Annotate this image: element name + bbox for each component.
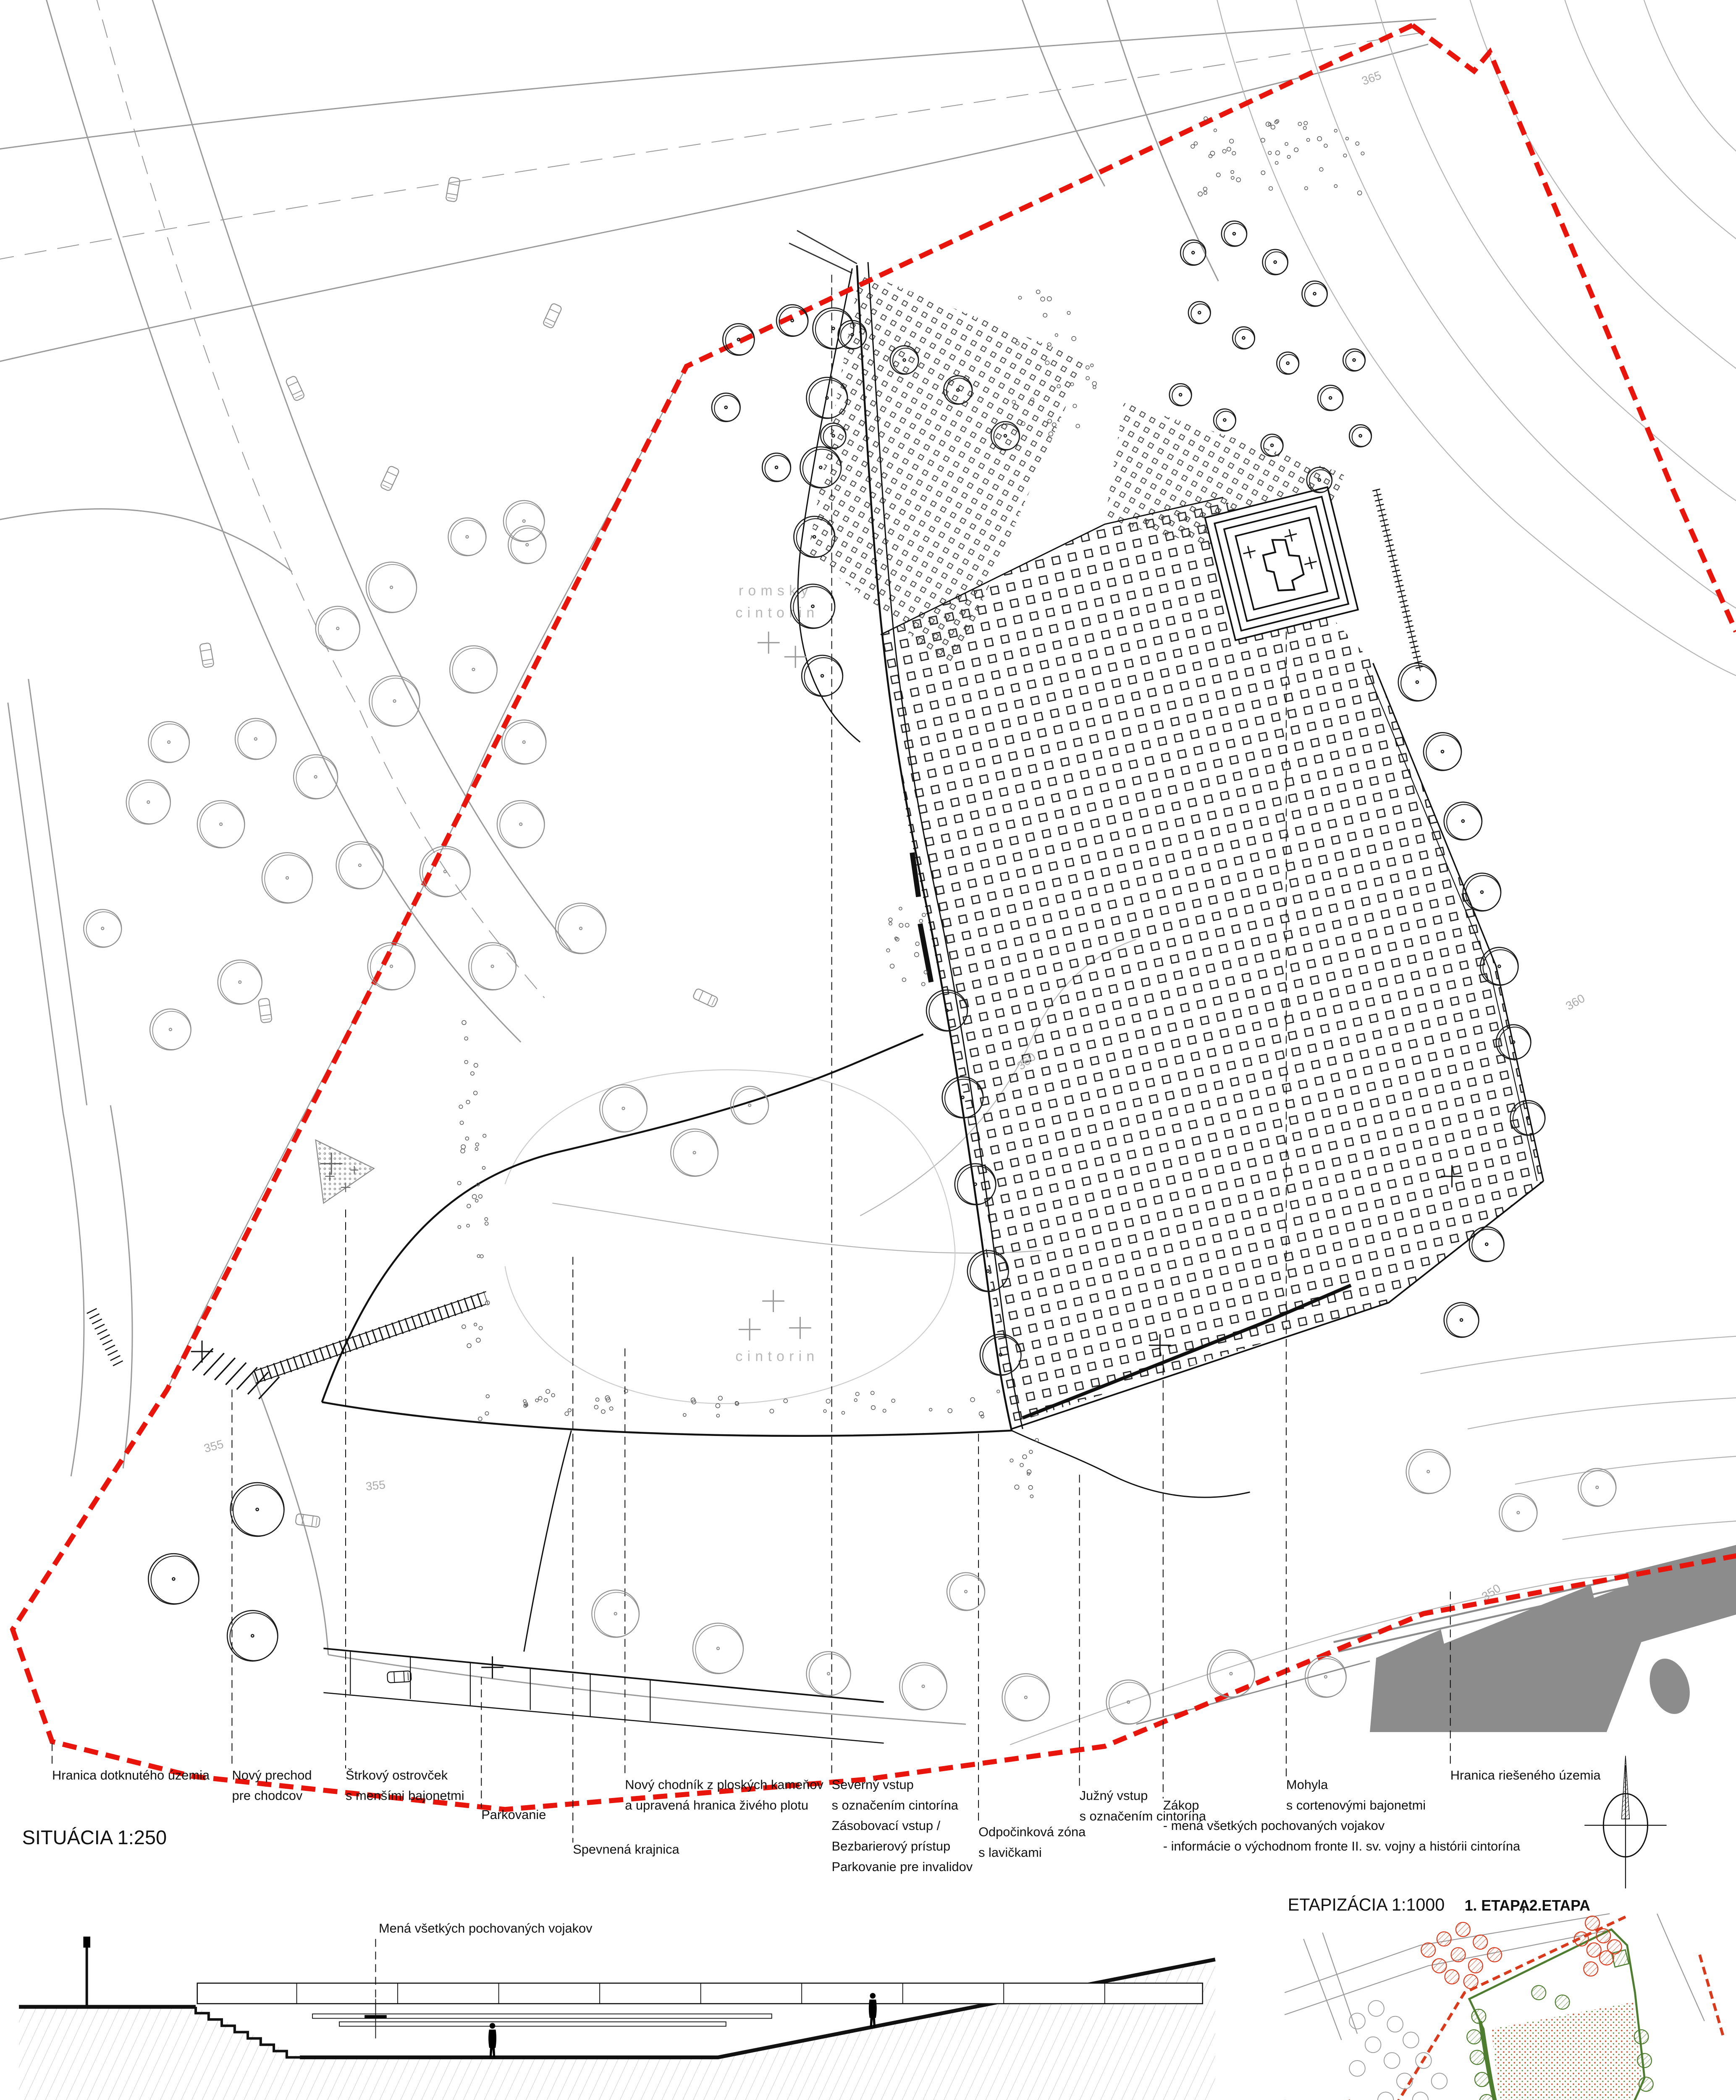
tree-icon: [336, 842, 383, 889]
tree-icon: [1214, 409, 1236, 431]
mini-tree-green: [1634, 2030, 1649, 2044]
stone-dot: [1346, 137, 1349, 140]
stone-dot: [1356, 142, 1359, 145]
stone-dot: [594, 1405, 598, 1409]
tree-icon: [508, 526, 546, 564]
stone-dot: [683, 1413, 686, 1416]
stone-dot: [1194, 142, 1197, 145]
stone-dot: [1203, 187, 1207, 191]
stone-dot: [1303, 126, 1307, 130]
stone-dot: [1023, 1455, 1027, 1459]
mini-tree-green: [1467, 2030, 1481, 2044]
tree-icon: [1444, 802, 1482, 840]
stone-dot: [467, 1224, 469, 1227]
stone-dot: [1287, 155, 1290, 158]
tree-icon: [503, 501, 545, 542]
car-icon: [692, 988, 719, 1008]
gravel-island: [316, 1140, 374, 1203]
stone-dot: [770, 1409, 774, 1413]
stone-dot: [485, 1222, 488, 1225]
stairs-comb: [92, 1310, 120, 1367]
stone-dot: [477, 1255, 480, 1257]
stone-dot: [462, 1021, 466, 1025]
stone-dot: [1334, 129, 1337, 132]
stone-dot: [544, 1399, 548, 1402]
callout-odpocinkova-zona: Odpočinková zóna: [978, 1824, 1086, 1839]
mini-tree-gray: [1413, 2092, 1429, 2100]
stone-dot: [997, 1390, 1000, 1393]
stone-dot: [1261, 171, 1265, 175]
stone-dot: [889, 922, 892, 925]
tree-icon: [899, 1663, 947, 1710]
stone-dot: [1198, 192, 1202, 196]
tree-icon: [693, 1623, 743, 1674]
mini-tree-red: [1445, 1970, 1459, 1984]
mini-tree-red: [1437, 1932, 1451, 1946]
stone-dot: [462, 1325, 466, 1328]
stone-dot: [535, 1399, 538, 1402]
stone-dot: [1055, 333, 1058, 336]
tree-icon: [1499, 1494, 1537, 1531]
mini-tree-green: [1470, 2050, 1484, 2065]
stone-dot: [472, 1194, 477, 1199]
callout-hranica-rieseneho: Hranica riešeného územia: [1450, 1768, 1601, 1782]
stone-dot: [457, 1181, 461, 1185]
stone-dot: [1028, 1486, 1033, 1490]
tree-icon: [1263, 249, 1288, 275]
stone-dot: [1018, 296, 1021, 299]
tree-icon: [450, 646, 497, 693]
stone-dot: [905, 923, 909, 927]
cars-layer: [199, 177, 719, 1683]
mini-tree-red: [1574, 1932, 1589, 1946]
tree-icon: [126, 780, 170, 824]
stone-dot: [1076, 424, 1080, 428]
callout-novy-chodnik: Nový chodník z ploských kameňov: [625, 1777, 823, 1792]
stone-dot: [716, 1404, 720, 1408]
stone-dot: [464, 1060, 468, 1064]
contour-label: 365: [1360, 68, 1383, 87]
stone-dot: [883, 1409, 886, 1412]
tree-icon: [723, 324, 754, 355]
stone-dot: [595, 1398, 599, 1401]
stone-dot: [474, 1063, 478, 1067]
stone-dot: [716, 1414, 719, 1417]
stone-dot: [892, 1399, 895, 1402]
callout-hranica-dotknuteho: Hranica dotknutého územia: [52, 1768, 210, 1782]
stone-dot: [601, 1410, 605, 1413]
mini-tree-gray: [1384, 2053, 1400, 2068]
contour-label: 350: [1479, 1581, 1503, 1603]
car-icon: [387, 1671, 412, 1683]
stone-dot: [899, 923, 903, 927]
stone-dot: [919, 919, 923, 923]
tree-icon: [294, 755, 338, 799]
svg-text:,: ,: [1521, 1897, 1526, 1914]
callout-severny-vstup: Severný vstup: [832, 1777, 914, 1792]
stone-dot: [483, 1166, 485, 1169]
stone-dot: [1306, 138, 1309, 141]
tree-icon: [712, 393, 740, 422]
mini-tree-green: [1475, 2072, 1489, 2087]
stone-dot: [929, 1408, 932, 1411]
mini-tree-gray: [1365, 2037, 1381, 2053]
mini-tree-gray: [1349, 2061, 1365, 2076]
mini-tree-red: [1464, 1974, 1478, 1989]
stone-dot: [826, 1399, 830, 1403]
tree-icon: [600, 1085, 647, 1132]
stone-dot: [899, 907, 902, 910]
stone-dot: [464, 1037, 468, 1040]
mini-tree-red: [1473, 1935, 1487, 1949]
stone-dot: [1305, 186, 1308, 190]
stone-dot: [483, 1134, 486, 1137]
stone-dot: [465, 1137, 469, 1140]
stone-dot: [894, 937, 897, 940]
stone-dot: [471, 1072, 475, 1076]
car-icon: [380, 465, 400, 491]
stone-dot: [1073, 404, 1077, 408]
mini-tree-red: [1584, 1962, 1598, 1976]
tree-icon: [368, 942, 415, 990]
tree-icon: [1170, 384, 1192, 406]
stone-dot: [1231, 176, 1234, 179]
callout-zakop: Zákop: [1163, 1798, 1199, 1812]
stone-dot: [1271, 125, 1275, 129]
stone-dot: [486, 1394, 489, 1398]
tree-icon: [369, 676, 420, 726]
tree-icon: [262, 853, 312, 903]
stone-dot: [474, 1091, 477, 1095]
svg-text:s označením cintorína: s označením cintorína: [832, 1798, 959, 1812]
boundary-riesene: [1413, 25, 1736, 632]
svg-text:pre chodcov: pre chodcov: [232, 1788, 302, 1803]
tree-icon: [231, 1483, 284, 1536]
callout-strkovy-ostrovcek: Štrkový ostrovček: [346, 1768, 448, 1782]
tree-icon: [197, 801, 245, 848]
stone-dot: [1294, 148, 1298, 152]
stone-dot: [479, 1194, 483, 1198]
stone-dot: [1209, 154, 1212, 157]
tree-icon: [235, 719, 276, 760]
tree-icon: [1349, 425, 1371, 447]
etapa1-legend: 1. ETAPA: [1465, 1897, 1530, 1914]
section-rez1: Mená všetkých pochovaných vojakov REZ ZÁ…: [19, 1921, 1215, 2100]
stone-dot: [546, 1389, 550, 1394]
mini-tree-red: [1432, 1959, 1447, 1973]
stone-dot: [485, 1412, 488, 1415]
crosswalk: [192, 1349, 279, 1399]
tree-icon: [1188, 302, 1211, 324]
stone-dot: [1334, 184, 1337, 187]
stone-dot: [1285, 142, 1288, 145]
stone-dot: [1298, 122, 1301, 126]
stone-dot: [1275, 151, 1280, 155]
mini-tree-red: [1451, 1948, 1466, 1962]
mini-tree-red: [1469, 1959, 1483, 1973]
stone-dot: [461, 1144, 465, 1149]
stone-dot: [1020, 1463, 1023, 1467]
stone-dot: [1086, 376, 1089, 380]
stone-dot: [1361, 152, 1364, 155]
svg-text:- informácie o východnom front: - informácie o východnom fronte II. sv. …: [1163, 1839, 1521, 1853]
stone-dot: [1319, 168, 1323, 171]
car-icon: [543, 303, 562, 329]
mini-tree-gray: [1432, 2073, 1448, 2089]
tree-icon: [1463, 873, 1501, 911]
stone-dot: [568, 1409, 571, 1412]
stone-dot: [890, 964, 894, 968]
tree-icon: [806, 1651, 850, 1696]
tree-icon: [150, 1009, 191, 1050]
tree-icon: [1002, 1674, 1049, 1721]
tree-icon: [1180, 240, 1206, 265]
mini-tree-green: [1555, 1995, 1570, 2009]
tree-icon: [1302, 281, 1327, 306]
callout-novy-prechod: Nový prechod: [232, 1768, 312, 1782]
mini-tree-red: [1585, 1916, 1600, 1930]
stone-path-comb: [256, 1298, 486, 1377]
stone-dot: [871, 1406, 876, 1410]
stone-dot: [565, 1412, 569, 1415]
stone-dot: [1230, 139, 1234, 143]
stone-dot: [1269, 186, 1273, 190]
svg-text:Parkovanie pre invalidov: Parkovanie pre invalidov: [832, 1859, 973, 1874]
mini-tree-gray: [1378, 2092, 1394, 2100]
car-icon: [258, 998, 272, 1023]
stone-dot: [475, 1147, 478, 1150]
svg-text:s cortenovými bajonetmi: s cortenovými bajonetmi: [1286, 1798, 1426, 1812]
svg-text:Bezbarierový prístup: Bezbarierový prístup: [832, 1839, 951, 1853]
stone-dot: [459, 1105, 463, 1109]
mini-tree-red: [1608, 1940, 1622, 1954]
callout-mohyla: Mohyla: [1286, 1777, 1328, 1792]
car-icon: [199, 643, 214, 668]
tree-icon: [671, 1129, 718, 1176]
stone-dot: [1261, 138, 1265, 142]
person-figure: [488, 2023, 496, 2058]
stone-dot: [922, 913, 926, 916]
tree-icon: [366, 562, 417, 612]
stone-dot: [823, 1410, 826, 1412]
stone-dot: [886, 949, 890, 952]
mini-tree-gray: [1349, 2013, 1365, 2029]
cintorin-label: cintorin: [735, 1349, 819, 1365]
callout-parkovanie: Parkovanie: [481, 1807, 546, 1822]
tree-icon: [448, 518, 486, 556]
rez1-callout: Mená všetkých pochovaných vojakov: [379, 1921, 593, 1935]
stone-dot: [609, 1407, 613, 1410]
tree-icon: [1343, 349, 1365, 371]
romsky-cintorin-label-line2: cintorin: [735, 605, 819, 621]
stone-dot: [458, 1226, 461, 1228]
mini-tree-gray: [1403, 2032, 1419, 2048]
tree-icon: [84, 909, 121, 947]
tree-icon: [1424, 732, 1461, 770]
name-plate: [339, 2022, 726, 2026]
tree-icon: [148, 722, 189, 763]
stone-dot: [922, 982, 925, 986]
mini-tree-red: [1587, 1943, 1601, 1957]
stone-dot: [475, 1199, 478, 1202]
stone-dot: [461, 1149, 465, 1153]
tree-icon: [1398, 663, 1436, 701]
stone-dot: [1214, 129, 1217, 132]
lamp-post-icon: [83, 1937, 90, 2007]
tree-icon: [813, 308, 854, 349]
stone-dot: [871, 1391, 874, 1394]
stone-dot: [479, 1326, 482, 1330]
stone-dot: [1210, 151, 1214, 155]
tree-icon: [556, 903, 606, 953]
tree-icon: [947, 1572, 985, 1610]
tree-icon: [497, 801, 545, 848]
stone-dot: [1072, 336, 1076, 341]
stone-dot: [1232, 152, 1236, 155]
stone-dot: [1091, 364, 1094, 367]
tree-icon: [1207, 1650, 1255, 1698]
callout-spevnena-krajnica: Spevnená krajnica: [573, 1842, 679, 1857]
stone-dot: [1086, 366, 1089, 369]
grave-field-main: [881, 497, 1543, 1424]
stone-dot: [948, 1409, 952, 1413]
tree-icon: [1233, 327, 1255, 349]
stone-dot: [1275, 161, 1278, 164]
tree-icon: [1578, 1468, 1616, 1506]
stone-dot: [842, 1411, 844, 1414]
tree-icon: [469, 942, 516, 990]
stone-dot: [1041, 297, 1045, 301]
car-icon: [295, 1514, 320, 1528]
mini-tree-green: [1637, 2053, 1652, 2068]
svg-text:Zásobovací vstup /: Zásobovací vstup /: [832, 1818, 941, 1833]
plan-sheet: romsky cintorin cintorin 355 355 360 360…: [0, 0, 1736, 2100]
stone-dot: [915, 953, 919, 957]
mini-tree-red: [1487, 1948, 1502, 1962]
stone-dot: [970, 1398, 975, 1402]
tree-icon: [316, 606, 360, 651]
stone-dot: [1324, 144, 1327, 147]
tree-icon: [227, 1611, 278, 1661]
stone-dot: [467, 1344, 471, 1348]
situacia-title: SITUÁCIA 1:250: [22, 1826, 167, 1848]
mini-tree-green: [1531, 1985, 1546, 2000]
stone-dot: [1217, 173, 1220, 177]
stone-dot: [475, 1143, 479, 1146]
tree-icon: [502, 720, 546, 764]
mini-tree-gray: [1387, 2016, 1403, 2032]
tree-icon: [1469, 1227, 1504, 1262]
mini-tree-gray: [1368, 2000, 1384, 2016]
tree-icon: [762, 453, 791, 482]
car-icon: [285, 375, 305, 402]
mini-tree-red: [1421, 1943, 1435, 1957]
svg-text:s lavičkami: s lavičkami: [978, 1845, 1042, 1860]
mini-tree-red: [1456, 1922, 1470, 1937]
tree-icon: [1406, 1449, 1450, 1494]
stone-dot: [784, 1399, 787, 1403]
stone-dot: [1227, 147, 1231, 151]
svg-text:s menšími bajonetmi: s menšími bajonetmi: [346, 1788, 464, 1803]
stone-dot: [1268, 151, 1272, 155]
tree-icon: [1318, 385, 1343, 410]
etapa2-legend: 2.ETAPA: [1529, 1897, 1590, 1914]
stone-dot: [474, 1323, 477, 1326]
situacia-plan: romsky cintorin cintorin 355 355 360 360…: [0, 0, 1736, 1888]
stone-dot: [1029, 1450, 1033, 1454]
mini-grave-field: [1491, 2002, 1641, 2100]
stone-dot: [1304, 121, 1308, 125]
stone-dot: [1358, 191, 1362, 195]
contour-label: 360: [1563, 991, 1587, 1013]
svg-text:a upravená hranica živého plot: a upravená hranica živého plotu: [625, 1798, 808, 1812]
stone-dot: [1343, 154, 1347, 157]
stone-dot: [467, 1204, 471, 1208]
stone-dot: [1067, 311, 1070, 315]
stone-dot: [1191, 144, 1195, 148]
stone-dot: [1204, 191, 1207, 194]
tree-icon: [148, 1554, 199, 1604]
parking: [323, 1648, 884, 1743]
etapizacia-map: ETAPIZÁCIA 1:1000 1. ETAPA , 2.ETAPA: [1285, 1895, 1736, 2100]
stone-dot: [1036, 290, 1040, 294]
stone-dot: [915, 942, 919, 946]
stone-dot: [855, 1392, 859, 1396]
stone-dot: [889, 918, 892, 921]
stone-dot: [1222, 150, 1226, 153]
tree-icon: [592, 1590, 639, 1638]
stone-dot: [1231, 171, 1234, 173]
stone-dot: [1236, 178, 1240, 182]
stone-dot: [538, 1396, 542, 1400]
stone-dot: [466, 1100, 470, 1104]
tree-icon: [420, 846, 470, 897]
stone-dot: [476, 1338, 480, 1342]
callout-juzny-vstup: Južný vstup: [1080, 1788, 1148, 1803]
stone-dot: [718, 1396, 722, 1400]
stone-dot: [1093, 386, 1096, 388]
stone-dot: [1092, 381, 1096, 386]
contour-label: 355: [365, 1478, 386, 1493]
stone-dot: [485, 1218, 488, 1221]
stone-dot: [1030, 1495, 1033, 1498]
tree-icon: [218, 960, 262, 1004]
stone-dot: [1043, 313, 1047, 317]
mini-tree-green: [1639, 2077, 1653, 2091]
tree-icon: [1222, 221, 1247, 246]
svg-text:- mená všetkých pochovaných vo: - mená všetkých pochovaných vojakov: [1163, 1818, 1385, 1833]
stone-dot: [1015, 1485, 1019, 1489]
mini-tree-green: [1472, 2009, 1486, 2024]
stone-dot: [1010, 1459, 1013, 1462]
stone-dot: [480, 1255, 483, 1258]
grave-fields: [808, 272, 1543, 1429]
stone-dot: [460, 1121, 463, 1124]
stone-dot: [551, 1394, 555, 1397]
mini-tree-red: [1596, 1929, 1610, 1943]
tree-icon: [1444, 1302, 1479, 1337]
stone-dot: [478, 1417, 482, 1421]
contour-label: 355: [202, 1437, 225, 1455]
stone-dot: [902, 978, 906, 982]
wall-band: [197, 1983, 1203, 2004]
tree-icon: [802, 655, 843, 696]
tree-icon: [1277, 352, 1299, 374]
stone-dot: [1027, 1470, 1031, 1474]
etapizacia-title: ETAPIZÁCIA 1:1000: [1288, 1895, 1445, 1914]
car-icon: [446, 177, 460, 202]
stone-dot: [1047, 297, 1052, 301]
